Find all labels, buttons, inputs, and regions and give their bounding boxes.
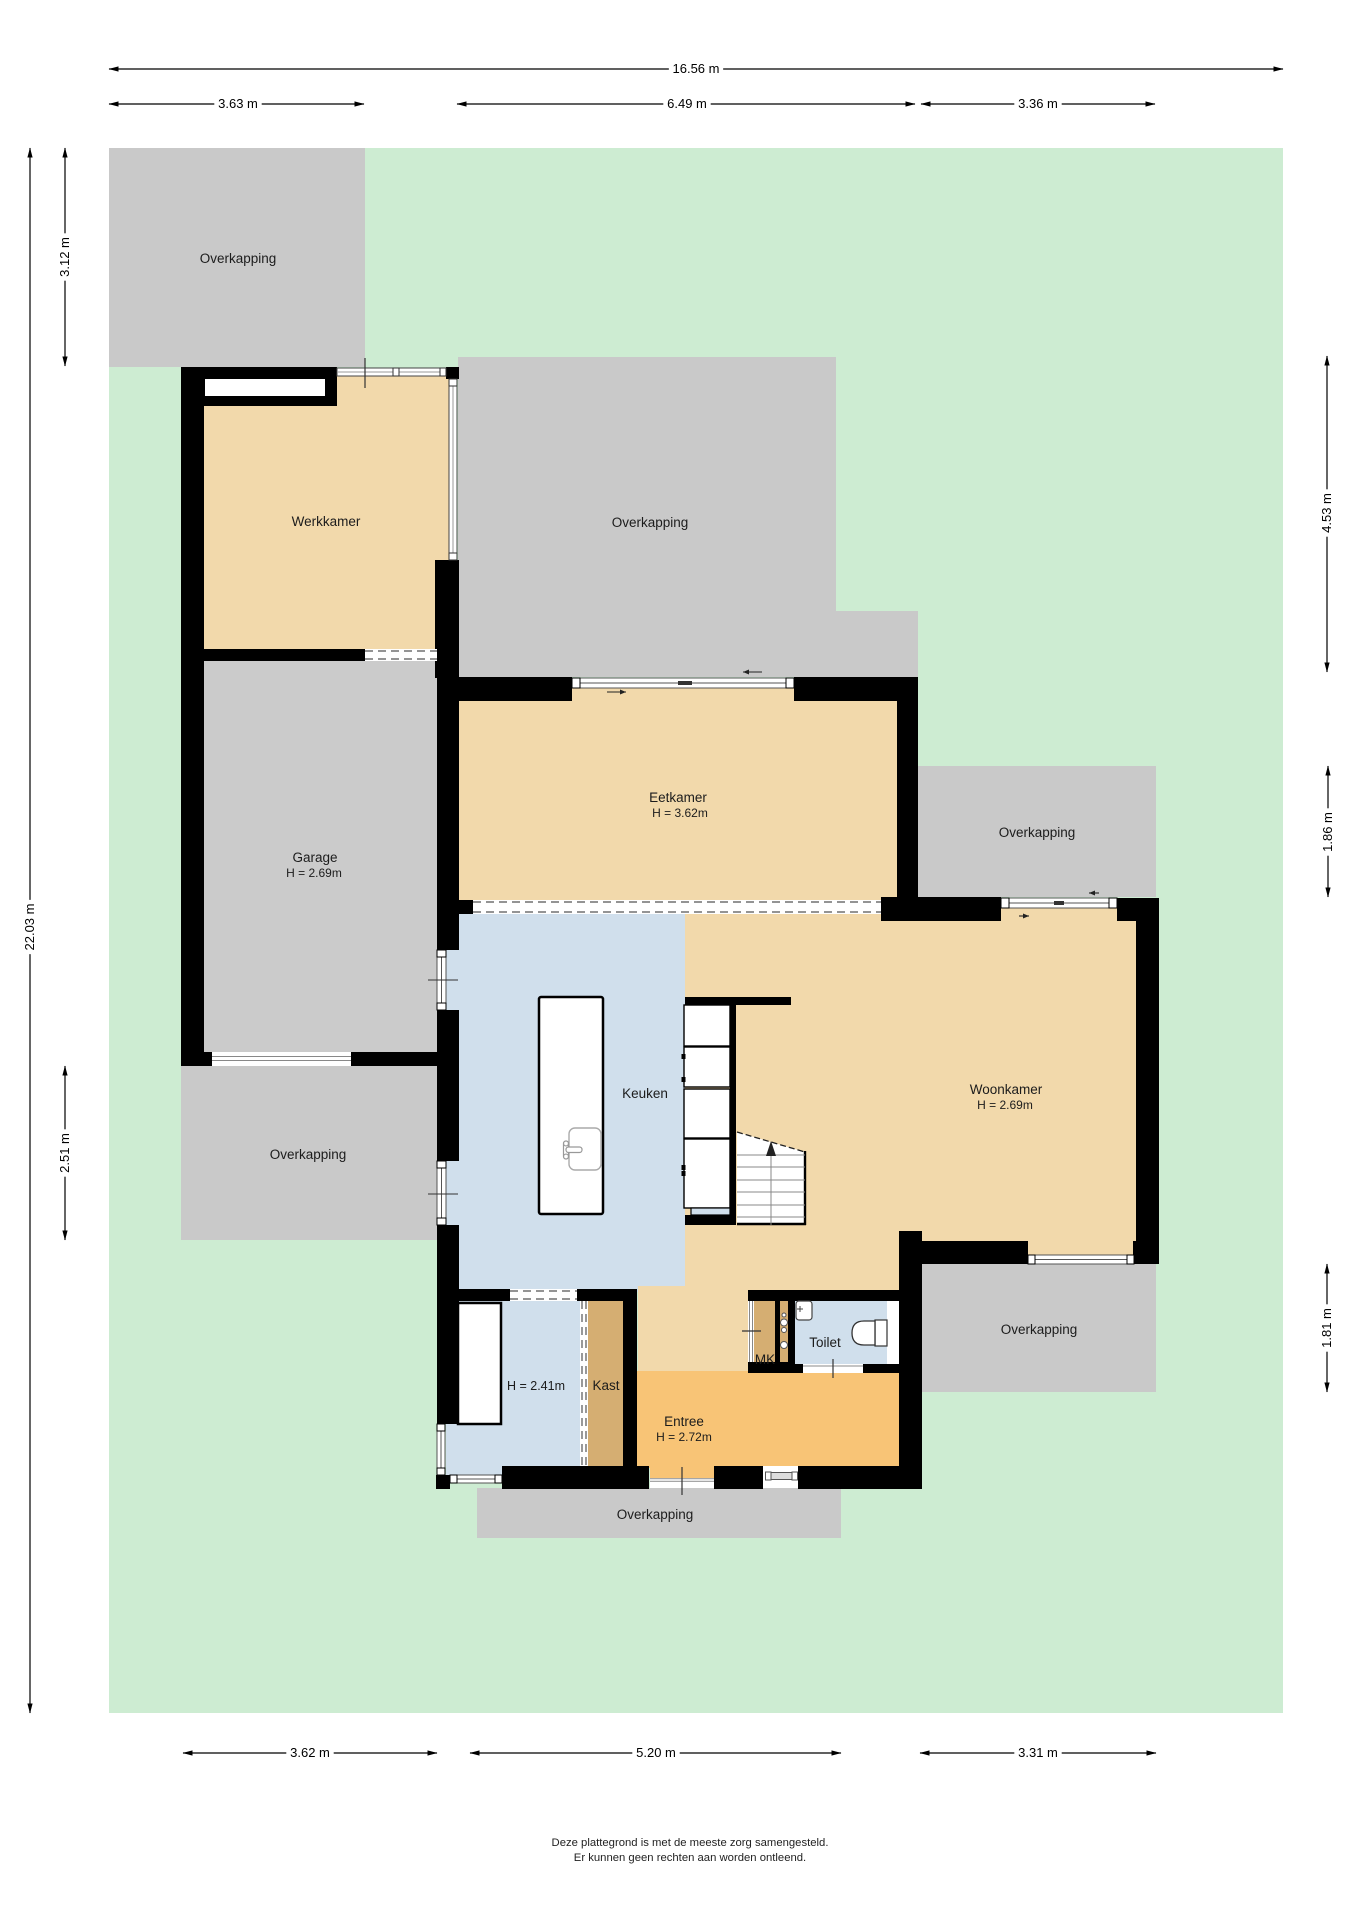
svg-text:Overkapping: Overkapping	[200, 251, 277, 266]
svg-text:Entree: Entree	[664, 1414, 704, 1429]
svg-text:3.36 m: 3.36 m	[1018, 96, 1058, 111]
svg-text:2.51 m: 2.51 m	[57, 1133, 72, 1173]
svg-text:Keuken: Keuken	[622, 1086, 668, 1101]
svg-text:5.20 m: 5.20 m	[636, 1745, 676, 1760]
svg-text:H = 2.69m: H = 2.69m	[977, 1098, 1033, 1112]
svg-text:H = 2.69m: H = 2.69m	[286, 866, 342, 880]
svg-text:Overkapping: Overkapping	[270, 1147, 347, 1162]
svg-text:Overkapping: Overkapping	[999, 825, 1076, 840]
svg-text:6.49 m: 6.49 m	[667, 96, 707, 111]
svg-text:H = 2.72m: H = 2.72m	[656, 1430, 712, 1444]
svg-text:MK: MK	[755, 1352, 775, 1367]
svg-text:Overkapping: Overkapping	[1001, 1322, 1078, 1337]
svg-text:Er kunnen geen rechten aan wor: Er kunnen geen rechten aan worden ontlee…	[574, 1852, 806, 1864]
svg-text:3.12 m: 3.12 m	[57, 237, 72, 277]
svg-text:Garage: Garage	[292, 850, 337, 865]
svg-text:1.86 m: 1.86 m	[1320, 812, 1335, 852]
svg-text:3.31 m: 3.31 m	[1018, 1745, 1058, 1760]
svg-text:16.56 m: 16.56 m	[673, 61, 720, 76]
svg-text:Eetkamer: Eetkamer	[649, 790, 707, 805]
svg-text:Kast: Kast	[592, 1378, 619, 1393]
svg-text:Werkkamer: Werkkamer	[292, 514, 361, 529]
svg-text:H = 2.41m: H = 2.41m	[507, 1379, 565, 1393]
svg-text:22.03 m: 22.03 m	[22, 904, 37, 951]
svg-text:Toilet: Toilet	[809, 1335, 841, 1350]
svg-text:1.81 m: 1.81 m	[1319, 1308, 1334, 1348]
svg-text:3.62 m: 3.62 m	[290, 1745, 330, 1760]
svg-text:Deze plattegrond is met de mee: Deze plattegrond is met de meeste zorg s…	[552, 1837, 829, 1849]
svg-text:Overkapping: Overkapping	[617, 1507, 694, 1522]
svg-text:Overkapping: Overkapping	[612, 515, 689, 530]
svg-text:Woonkamer: Woonkamer	[970, 1082, 1043, 1097]
svg-text:H = 3.62m: H = 3.62m	[652, 806, 708, 820]
svg-text:3.63 m: 3.63 m	[218, 96, 258, 111]
svg-text:4.53 m: 4.53 m	[1319, 493, 1334, 533]
